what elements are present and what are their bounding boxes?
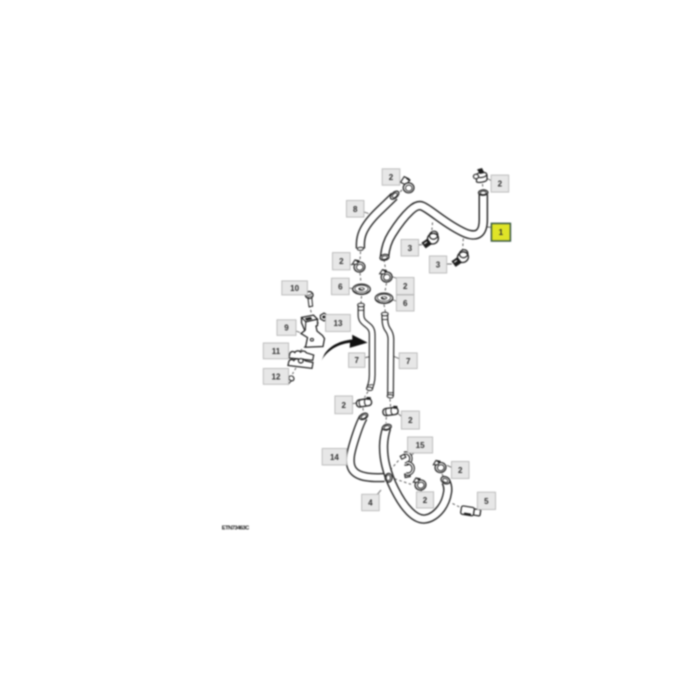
svg-text:2: 2 <box>498 180 503 189</box>
svg-text:3: 3 <box>436 261 441 270</box>
svg-text:11: 11 <box>272 347 281 356</box>
svg-text:2: 2 <box>423 496 428 505</box>
svg-text:9: 9 <box>284 324 289 333</box>
svg-text:4: 4 <box>368 499 373 508</box>
svg-text:2: 2 <box>408 416 413 425</box>
svg-text:2: 2 <box>341 401 346 410</box>
svg-text:1: 1 <box>499 228 504 237</box>
svg-text:7: 7 <box>354 356 359 365</box>
svg-text:6: 6 <box>338 283 343 292</box>
svg-text:13: 13 <box>334 319 343 328</box>
svg-text:3: 3 <box>408 244 413 253</box>
svg-text:2: 2 <box>403 282 408 291</box>
svg-text:ETN73463C: ETN73463C <box>222 525 250 531</box>
svg-text:14: 14 <box>330 453 339 462</box>
svg-text:2: 2 <box>339 257 344 266</box>
svg-text:12: 12 <box>272 372 281 381</box>
svg-text:5: 5 <box>484 497 489 506</box>
svg-text:6: 6 <box>403 299 408 308</box>
svg-text:15: 15 <box>416 441 425 450</box>
svg-text:2: 2 <box>458 466 463 475</box>
svg-text:10: 10 <box>290 284 299 293</box>
svg-text:2: 2 <box>389 173 394 182</box>
svg-text:7: 7 <box>406 357 411 366</box>
svg-text:8: 8 <box>353 205 358 214</box>
